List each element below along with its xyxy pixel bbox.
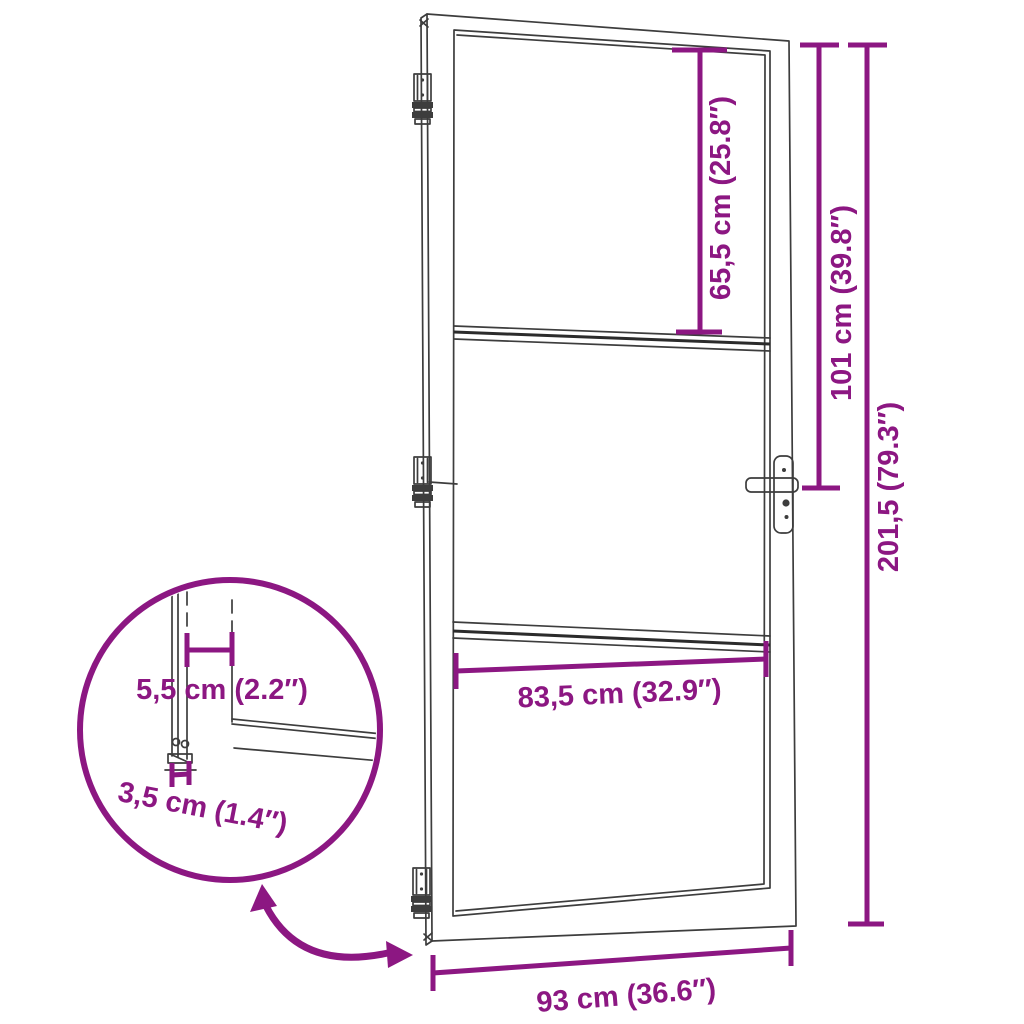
door-handle <box>746 456 798 533</box>
door-dimension-diagram: 65,5 cm (25.8″) 101 cm (39.8″) 201,5 (79… <box>0 0 1024 1024</box>
hinge-bottom-icon <box>411 868 432 918</box>
dimension-handle-height: 101 cm (39.8″) <box>800 45 858 488</box>
rotation-arrow-icon <box>250 884 413 968</box>
dimension-door-width: 93 cm (36.6″) <box>433 930 791 1019</box>
hinge-top-icon <box>412 74 433 124</box>
detail-circle: 5,5 cm (2.2″) 3,5 cm (1.4″) <box>80 580 392 880</box>
dimension-door-height: 201,5 (79.3″) <box>848 45 905 924</box>
glazing-bar-bottom <box>453 622 770 652</box>
glass-width-label: 83,5 cm (32.9″) <box>517 674 722 715</box>
door-width-label: 93 cm (36.6″) <box>535 973 717 1019</box>
glass-top-height-label: 65,5 cm (25.8″) <box>705 96 737 300</box>
door-outer-edge <box>427 14 796 941</box>
door-height-label: 201,5 (79.3″) <box>873 402 905 572</box>
profile-face-width-label: 5,5 cm (2.2″) <box>136 674 308 706</box>
door-drawing <box>420 14 796 945</box>
handle-backplate <box>774 456 793 533</box>
handle-height-label: 101 cm (39.8″) <box>826 205 858 401</box>
glazing-bar-top <box>454 326 770 351</box>
dimension-glass-width: 83,5 cm (32.9″) <box>456 641 766 714</box>
handle-lever <box>746 478 798 492</box>
dimension-glass-top-height: 65,5 cm (25.8″) <box>672 50 737 332</box>
diagram-svg: 65,5 cm (25.8″) 101 cm (39.8″) 201,5 (79… <box>0 0 1024 1024</box>
